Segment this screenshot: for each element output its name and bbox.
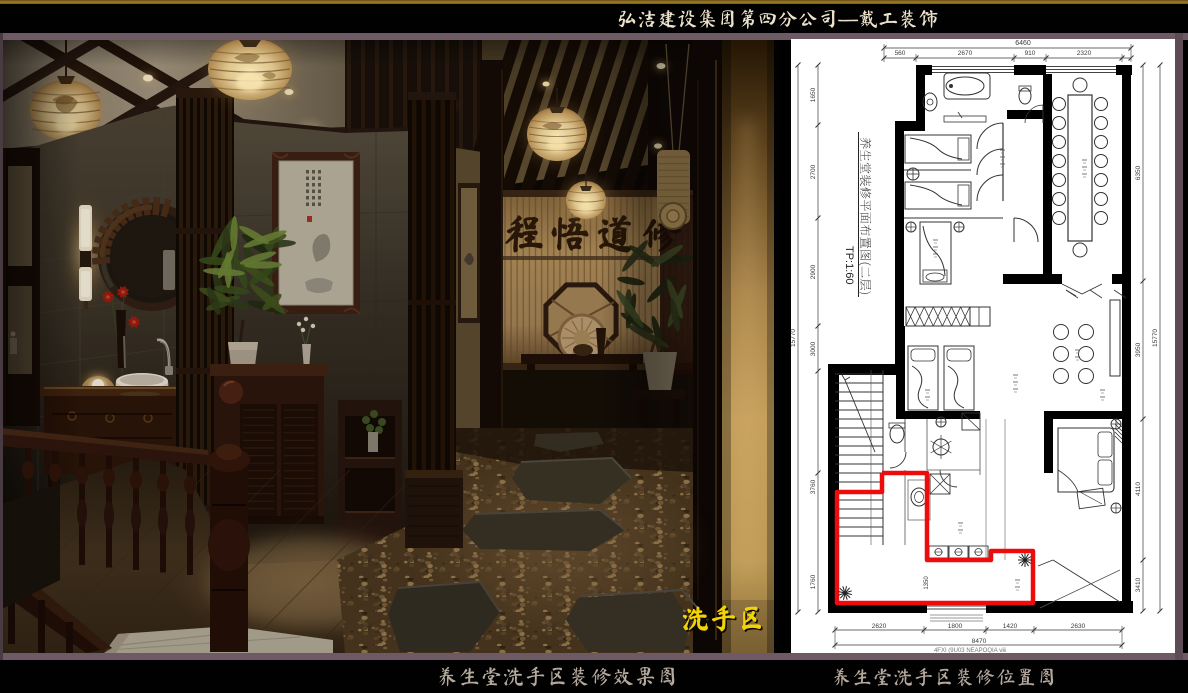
svg-text:2320: 2320 [1077,50,1092,57]
svg-text:560: 560 [895,50,906,57]
svg-text:6460: 6460 [1015,40,1031,47]
svg-text:2900: 2900 [810,264,817,279]
svg-text:3950: 3950 [1135,342,1142,357]
svg-text:8470: 8470 [972,638,987,645]
svg-text:910: 910 [1025,50,1036,57]
svg-text:1420: 1420 [1003,623,1018,630]
svg-text:1650: 1650 [810,87,817,102]
svg-text:6350: 6350 [1135,165,1142,180]
svg-text:1800: 1800 [948,623,963,630]
svg-text:1760: 1760 [810,574,817,589]
svg-text:15770: 15770 [790,329,797,347]
svg-text:15770: 15770 [1152,329,1159,347]
svg-text:3760: 3760 [810,479,817,494]
svg-text:3410: 3410 [1135,577,1142,592]
svg-text:2700: 2700 [810,164,817,179]
svg-text:1350: 1350 [924,576,930,590]
svg-text:TP:1:60: TP:1:60 [843,246,855,285]
svg-text:4110: 4110 [1135,482,1142,496]
svg-text:2670: 2670 [958,50,973,57]
svg-text:4FΧΙ (9U03 NEAPOQIA ⅷ: 4FΧΙ (9U03 NEAPOQIA ⅷ [934,647,1006,654]
svg-text:2620: 2620 [872,623,887,630]
svg-text:2630: 2630 [1071,623,1086,630]
svg-text:3000: 3000 [810,341,817,356]
